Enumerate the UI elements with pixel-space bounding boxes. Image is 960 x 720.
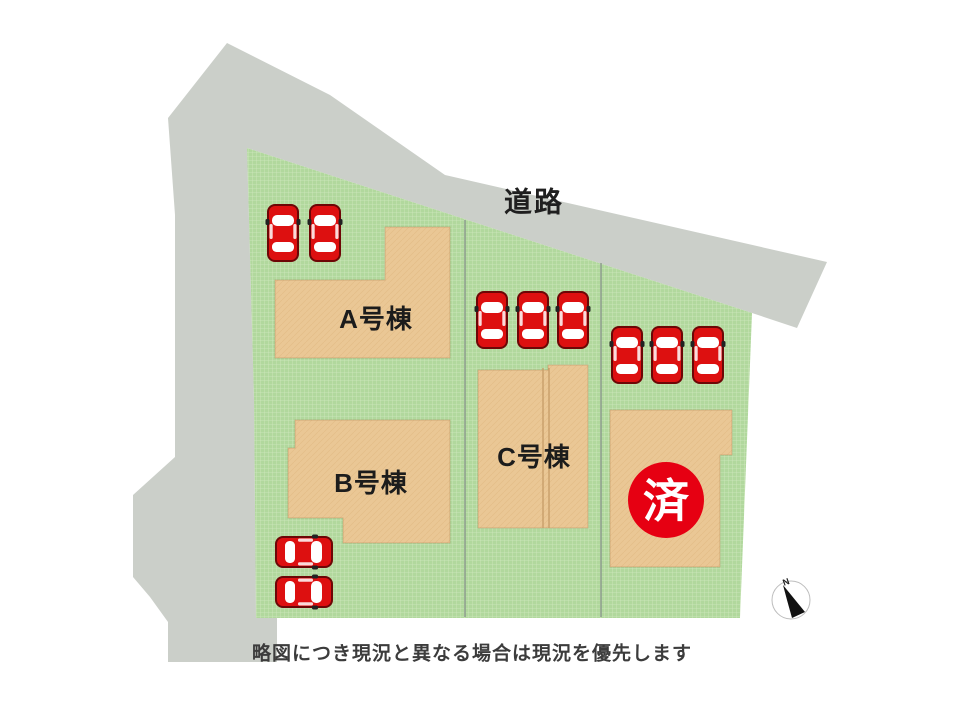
car	[516, 292, 551, 348]
car	[610, 327, 645, 383]
sold-badge-label: 済	[643, 475, 690, 527]
car	[308, 205, 343, 261]
car	[475, 292, 510, 348]
building-a-label: A号棟	[339, 304, 413, 334]
building-b-label: B号棟	[334, 468, 408, 498]
disclaimer-note: 略図につき現況と異なる場合は現況を優先します	[252, 642, 692, 665]
site-plan: 道路 A号棟 B号棟 C号棟 済 N 略図につき現況と異なる場合は現況を優先しま…	[0, 0, 960, 720]
sold-badge: 済	[628, 462, 704, 538]
building-c-label: C号棟	[497, 442, 571, 472]
car	[556, 292, 591, 348]
compass: N	[772, 576, 810, 619]
site-plan-canvas: 道路 A号棟 B号棟 C号棟 済 N 略図につき現況と異なる場合は現況を優先しま…	[0, 0, 960, 720]
car	[276, 535, 332, 570]
car	[276, 575, 332, 610]
car	[650, 327, 685, 383]
car	[266, 205, 301, 261]
car	[691, 327, 726, 383]
road-label: 道路	[504, 186, 564, 218]
